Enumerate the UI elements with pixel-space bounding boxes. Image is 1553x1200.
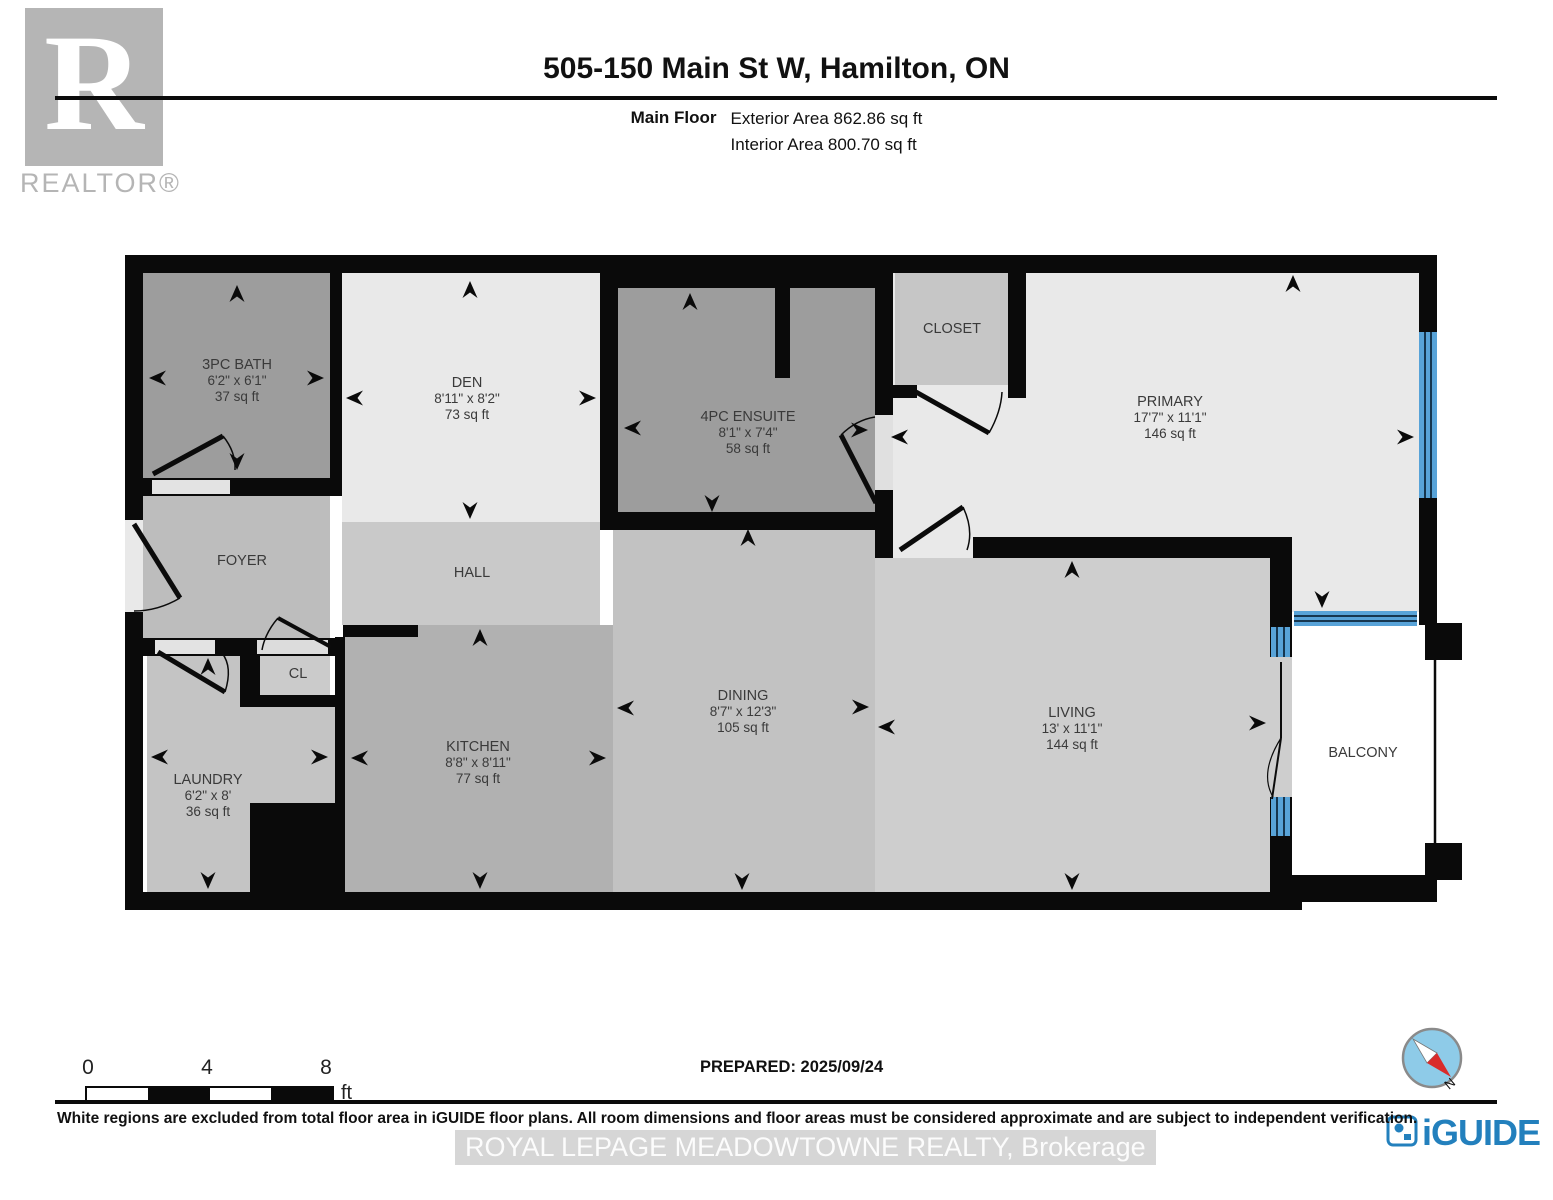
scale-tick-0: 0 bbox=[82, 1056, 94, 1080]
room-label-closet: CLOSET bbox=[923, 321, 981, 337]
room-label-foyer: FOYER bbox=[217, 553, 267, 569]
footer-divider bbox=[55, 1100, 1497, 1104]
iguide-wordmark: iGUIDE bbox=[1422, 1112, 1540, 1154]
room-label-dining: DINING8'7" x 12'3"105 sq ft bbox=[710, 688, 777, 736]
room-label-kitchen: KITCHEN8'8" x 8'11"77 sq ft bbox=[445, 739, 511, 787]
room-label-balcony: BALCONY bbox=[1328, 745, 1397, 761]
room-label-primary: PRIMARY17'7" x 11'1"146 sq ft bbox=[1133, 394, 1206, 442]
compass-icon: N bbox=[1403, 1029, 1461, 1092]
disclaimer-text: White regions are excluded from total fl… bbox=[57, 1110, 1417, 1128]
room-label-laundry: LAUNDRY6'2" x 8'36 sq ft bbox=[173, 772, 242, 820]
room-label-ensuite: 4PC ENSUITE8'1" x 7'4"58 sq ft bbox=[700, 409, 795, 457]
floorplan-page: { "header": { "logo_letter": "R", "logo_… bbox=[0, 0, 1553, 1200]
iguide-logo: iGUIDE bbox=[1384, 1112, 1540, 1154]
room-label-cl: CL bbox=[289, 666, 308, 682]
room-label-den: DEN8'11" x 8'2"73 sq ft bbox=[434, 375, 500, 423]
scale-tick-4: 4 bbox=[201, 1056, 213, 1080]
room-label-living: LIVING13' x 11'1"144 sq ft bbox=[1042, 705, 1103, 753]
room-label-bath: 3PC BATH6'2" x 6'1"37 sq ft bbox=[202, 357, 272, 405]
prepared-date: PREPARED: 2025/09/24 bbox=[700, 1058, 883, 1077]
floorplan-drawing: N bbox=[0, 0, 1553, 1200]
brokerage-watermark: ROYAL LEPAGE MEADOWTOWNE REALTY, Brokera… bbox=[455, 1130, 1156, 1165]
scale-tick-8: 8 bbox=[320, 1056, 332, 1080]
room-label-hall: HALL bbox=[454, 565, 490, 581]
